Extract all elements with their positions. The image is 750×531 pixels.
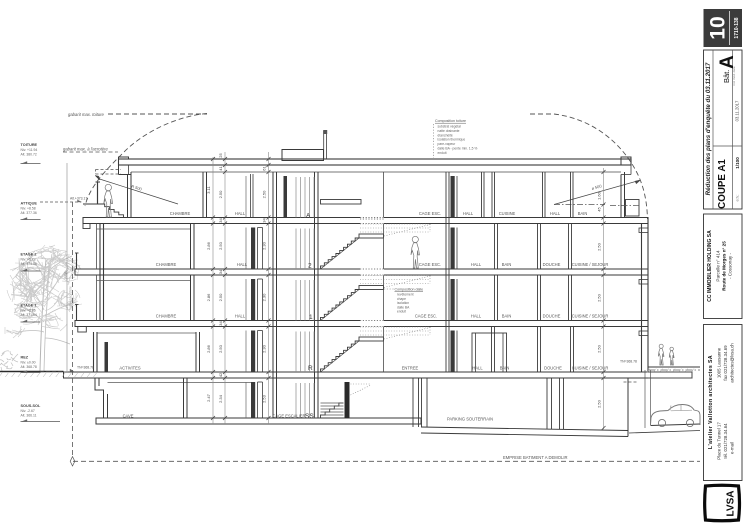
svg-text:gabarit max. à l'acrotère: gabarit max. à l'acrotère — [63, 147, 108, 152]
svg-text:ETAGE 1: ETAGE 1 — [21, 304, 37, 308]
svg-text:2.50: 2.50 — [218, 241, 223, 250]
svg-text:3.11: 3.11 — [206, 185, 211, 193]
svg-text:HALL: HALL — [472, 366, 483, 371]
svg-text:41: 41 — [218, 166, 223, 171]
svg-text:ACTIVITES: ACTIVITES — [119, 366, 140, 371]
svg-text:natte drainante: natte drainante — [438, 129, 460, 133]
svg-text:34: 34 — [218, 269, 223, 274]
svg-text:Alt. 374.50: Alt. 374.50 — [21, 262, 37, 266]
svg-text:2.34: 2.34 — [218, 394, 223, 403]
svg-text:2.53: 2.53 — [262, 394, 267, 403]
svg-text:Niv. +11.94: Niv. +11.94 — [21, 148, 38, 152]
svg-text:HALL: HALL — [471, 262, 482, 267]
svg-text:2.86: 2.86 — [206, 344, 211, 353]
svg-text:CAGE ESCALIER: CAGE ESCALIER — [273, 414, 306, 419]
svg-text:Niv. +8.58: Niv. +8.58 — [21, 206, 36, 210]
svg-text:EMPRISE BATIMENT A DEMOLIR: EMPRISE BATIMENT A DEMOLIR — [503, 455, 568, 460]
svg-text:2.50: 2.50 — [262, 190, 267, 199]
svg-text:2.30: 2.30 — [262, 293, 267, 302]
svg-text:architectes@lvsa.ch: architectes@lvsa.ch — [730, 343, 735, 383]
svg-text:2.50: 2.50 — [218, 344, 223, 353]
svg-text:HALL: HALL — [235, 314, 246, 319]
svg-text:03.11.2017: 03.11.2017 — [735, 100, 740, 121]
svg-text:HALL: HALL — [471, 314, 482, 319]
svg-text:SS: SS — [305, 413, 314, 420]
svg-text:TN=368.78: TN=368.78 — [620, 360, 637, 364]
svg-text:CAGE ESC.: CAGE ESC. — [419, 262, 441, 267]
svg-text:CUISINE: CUISINE — [499, 211, 516, 216]
svg-text:L'atelier Vallotton architecte: L'atelier Vallotton architectes SA — [708, 355, 714, 449]
svg-text:Alt. 366.11: Alt. 366.11 — [21, 413, 37, 417]
svg-text:2.50: 2.50 — [218, 293, 223, 302]
svg-text:Composition dalle: Composition dalle — [395, 288, 424, 292]
svg-text:CHAMBRE: CHAMBRE — [156, 262, 177, 267]
svg-text:CUISINE / SEJOUR: CUISINE / SEJOUR — [572, 314, 609, 319]
svg-text:Réduction des plans d'enquête: Réduction des plans d'enquête du 03.11.2… — [705, 62, 712, 195]
svg-text:1005 Lausanne: 1005 Lausanne — [717, 347, 722, 378]
svg-text:2.86: 2.86 — [206, 293, 211, 302]
svg-text:HALL: HALL — [235, 211, 246, 216]
svg-text:Bât.: Bât. — [722, 70, 731, 83]
svg-text:2.30: 2.30 — [262, 241, 267, 250]
svg-text:A: A — [306, 213, 311, 220]
svg-text:BAIN: BAIN — [500, 366, 510, 371]
svg-text:étanchéité: étanchéité — [438, 133, 453, 137]
svg-text:DOUCHE: DOUCHE — [543, 314, 561, 319]
svg-text:ech.:: ech.: — [736, 194, 740, 201]
svg-text:HALL: HALL — [463, 211, 474, 216]
svg-text:25: 25 — [218, 153, 223, 158]
svg-text:2: 2 — [308, 263, 312, 270]
svg-text:2.50: 2.50 — [597, 293, 602, 302]
svg-text:2.30: 2.30 — [262, 344, 267, 353]
svg-text:CAGE ESC.: CAGE ESC. — [415, 314, 437, 319]
svg-text:DOUCHE: DOUCHE — [543, 262, 561, 267]
svg-text:Niv. +2.86: Niv. +2.86 — [21, 308, 36, 312]
svg-text:isolation thermique: isolation thermique — [438, 138, 466, 142]
svg-text:fax 021/728.34.69: fax 021/728.34.69 — [723, 345, 728, 381]
svg-text:pare-vapeur: pare-vapeur — [438, 142, 457, 146]
svg-text:HALL: HALL — [550, 211, 561, 216]
svg-text:enduit: enduit — [438, 151, 447, 155]
svg-text:tél. 021/728.34.64: tél. 021/728.34.64 — [723, 423, 728, 459]
svg-text:DOUCHE: DOUCHE — [544, 366, 562, 371]
svg-text:Alt. 377.36: Alt. 377.36 — [21, 211, 37, 215]
svg-text:Niv. +5.72: Niv. +5.72 — [21, 257, 36, 261]
svg-text:gabarit max. toiture: gabarit max. toiture — [68, 112, 105, 117]
svg-text:CAGE ESC.: CAGE ESC. — [419, 211, 441, 216]
svg-text:Niv. -2.67: Niv. -2.67 — [21, 409, 35, 413]
svg-text:SOUS-SOL: SOUS-SOL — [21, 404, 42, 408]
svg-text:BAIN: BAIN — [502, 262, 512, 267]
svg-text:1/100: 1/100 — [735, 157, 740, 169]
svg-text:hauteur acrotère: hauteur acrotère — [69, 286, 73, 310]
svg-text:LVSA: LVSA — [726, 491, 737, 517]
svg-text:ind. mod. date: ind. mod. date — [732, 66, 736, 85]
svg-text:ETAGE 2: ETAGE 2 — [21, 253, 37, 257]
svg-text:42: 42 — [218, 372, 223, 377]
svg-text:TOITURE: TOITURE — [21, 143, 38, 147]
svg-text:61: 61 — [262, 166, 267, 171]
svg-text:2.47: 2.47 — [206, 393, 211, 402]
svg-text:REZ: REZ — [21, 356, 29, 360]
svg-text:Alt.+373.17: Alt.+373.17 — [70, 197, 87, 201]
svg-text:HALL: HALL — [237, 262, 248, 267]
svg-text:Alt. 380.72: Alt. 380.72 — [21, 152, 37, 156]
svg-text:dalle BA - pente min. 1,5 %: dalle BA - pente min. 1,5 % — [438, 147, 478, 151]
svg-text:CHAMBRE: CHAMBRE — [156, 314, 177, 319]
svg-text:ENTREE: ENTREE — [402, 366, 419, 371]
svg-text:45: 45 — [597, 207, 602, 212]
svg-text:34: 34 — [262, 218, 267, 223]
svg-text:2.50: 2.50 — [597, 399, 602, 408]
svg-text:CAVE: CAVE — [123, 414, 134, 419]
svg-text:substrat végétal: substrat végétal — [438, 125, 462, 129]
svg-text:34: 34 — [218, 218, 223, 223]
svg-text:BAIN: BAIN — [578, 211, 588, 216]
svg-text:8.08: 8.08 — [64, 272, 68, 279]
svg-text:Route de Morges n° 25: Route de Morges n° 25 — [722, 241, 727, 291]
svg-text:CC IMMOBILIER HOLDING SA: CC IMMOBILIER HOLDING SA — [707, 230, 713, 302]
svg-text:10: 10 — [707, 16, 730, 39]
svg-text:CHAMBRE: CHAMBRE — [170, 211, 191, 216]
svg-text:ATTIQUE: ATTIQUE — [21, 202, 38, 206]
svg-text:R: R — [308, 365, 313, 372]
svg-text:COUPE A1: COUPE A1 — [717, 159, 728, 209]
svg-text:Niv. ±0.00: Niv. ±0.00 — [21, 360, 36, 364]
svg-text:2.86: 2.86 — [206, 241, 211, 250]
svg-text:e-mail: e-mail — [730, 442, 735, 454]
svg-text:34: 34 — [218, 321, 223, 326]
svg-text:Composition toiture: Composition toiture — [435, 119, 466, 123]
svg-text:2.50: 2.50 — [597, 242, 602, 251]
svg-text:1: 1 — [309, 314, 313, 321]
svg-text:- Cossonay -: - Cossonay - — [728, 253, 733, 280]
svg-text:2.50: 2.50 — [218, 190, 223, 199]
svg-text:2.50: 2.50 — [597, 344, 602, 353]
svg-text:Place du Tunnel 17: Place du Tunnel 17 — [717, 422, 722, 460]
svg-text:BAIN: BAIN — [502, 314, 512, 319]
svg-text:PARKING SOUTERRAIN: PARKING SOUTERRAIN — [447, 417, 493, 422]
svg-text:1710-138: 1710-138 — [734, 17, 740, 38]
svg-text:Alt. 371.64: Alt. 371.64 — [21, 313, 37, 317]
svg-text:CUISINE / SEJOUR: CUISINE / SEJOUR — [572, 366, 609, 371]
svg-text:TN=368.78: TN=368.78 — [77, 366, 94, 370]
svg-text:CUISINE / SEJOUR: CUISINE / SEJOUR — [572, 262, 609, 267]
svg-text:1.60: 1.60 — [597, 191, 602, 200]
svg-text:Alt. 368.78: Alt. 368.78 — [21, 365, 37, 369]
svg-text:enduit: enduit — [397, 310, 406, 314]
svg-text:Parcelle n° 414: Parcelle n° 414 — [716, 250, 721, 282]
